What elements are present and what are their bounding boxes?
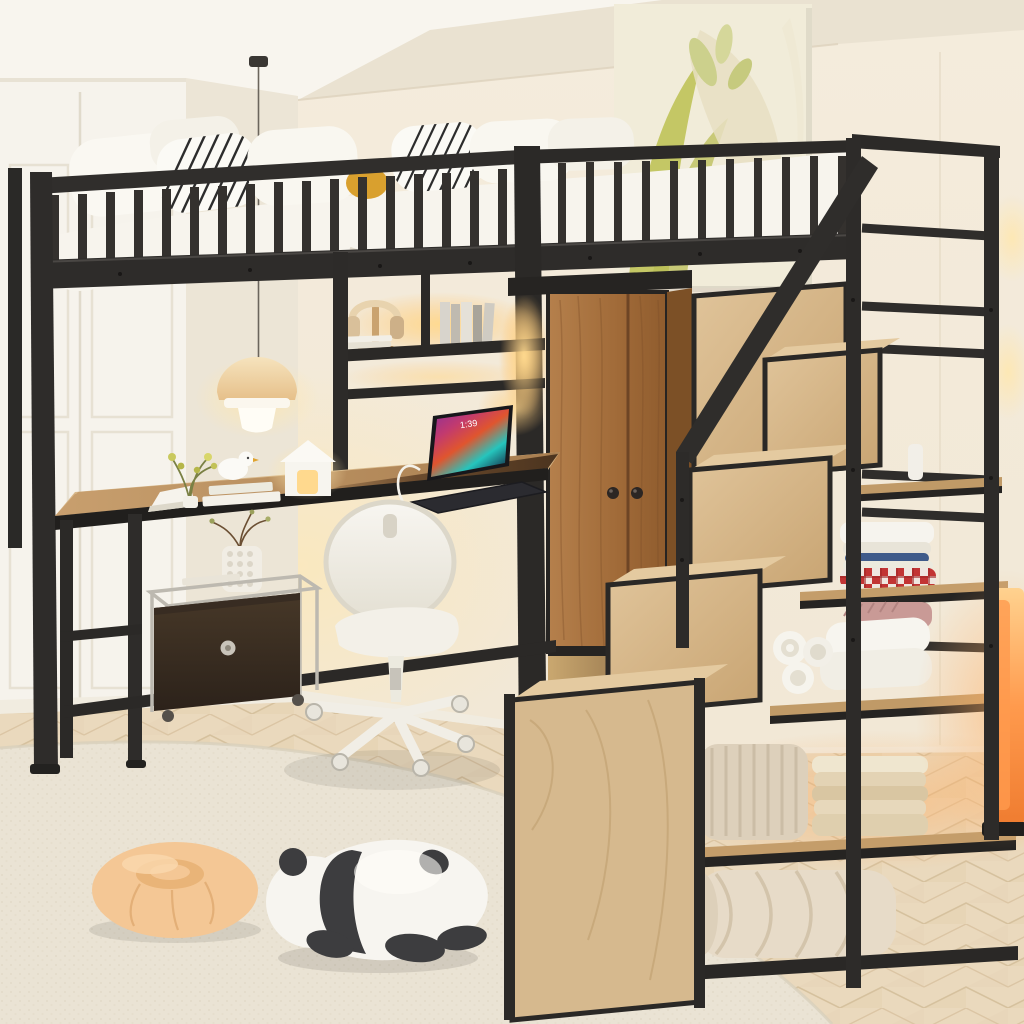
chair-seat: [335, 607, 459, 657]
panda-plush: [266, 833, 492, 973]
wardrobe-knob: [631, 487, 643, 499]
panda-ear: [279, 848, 307, 876]
knit-ridges: [712, 744, 796, 837]
ladder-post-right: [984, 150, 999, 840]
headphone-cup: [346, 316, 360, 339]
pouf-highlight: [122, 854, 178, 874]
plant-pot: [183, 496, 198, 508]
cart-caster: [162, 710, 174, 722]
stair-post: [504, 694, 515, 1020]
cart-caster: [292, 694, 304, 706]
shelf-divider: [421, 270, 430, 352]
scene-svg: 1:39: [0, 0, 1024, 1024]
pendant-mount: [249, 56, 268, 67]
wardrobe-knob: [607, 487, 619, 499]
closet-top-edge: [0, 78, 186, 82]
bedroom-photo: 1:39: [0, 0, 1024, 1024]
shelf-pillow: [819, 647, 933, 691]
stair-stringer-post: [846, 138, 861, 988]
pendant-ring: [224, 398, 290, 408]
donut-pouf: [89, 842, 261, 943]
desk-foot: [126, 760, 146, 768]
stair-post: [694, 678, 705, 1008]
handrail-post: [676, 452, 689, 648]
knob-highlight: [633, 489, 637, 493]
desk-leg: [128, 514, 142, 766]
chair-shadow: [284, 750, 500, 790]
headphone-cup: [390, 316, 404, 339]
drawer-knob-center: [225, 645, 231, 651]
panda-highlight: [354, 850, 442, 894]
led-glow-wardrobe: [500, 296, 548, 416]
knob-highlight: [609, 489, 613, 493]
bed-post-foot: [30, 764, 60, 774]
bed-post-rear-left: [8, 168, 22, 548]
comforter-roll: [682, 870, 896, 958]
chair-back-handle: [383, 514, 397, 538]
pendant-diffuser: [238, 408, 276, 432]
folded-tan-stack: [812, 756, 928, 836]
jar-white: [908, 444, 923, 480]
chair-gas-lift: [390, 668, 401, 690]
